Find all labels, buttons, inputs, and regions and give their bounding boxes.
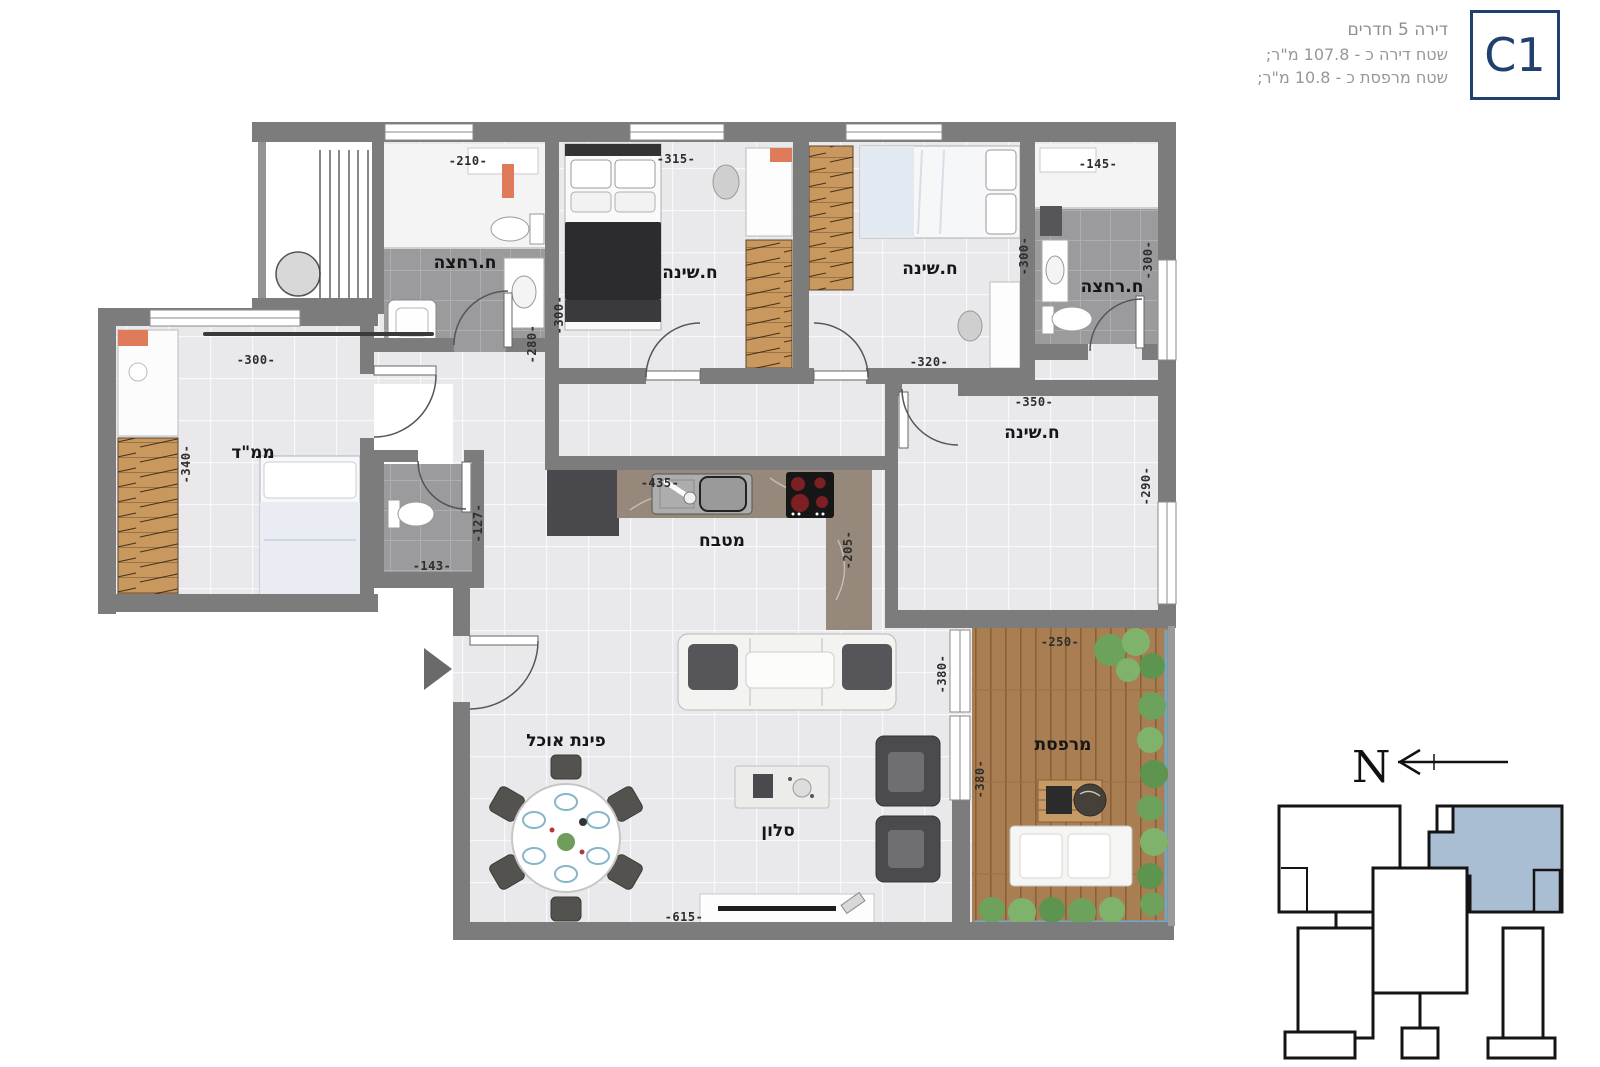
dim-bathroom2-width: -145- <box>1079 157 1118 171</box>
room-label-kitchen: מטבח <box>699 531 745 551</box>
coffee-table <box>735 766 829 808</box>
north-compass: N <box>1352 742 1508 793</box>
floorplan-page: דירה 5 חדרים שטח דירה כ - 107.8 מ"ר; שטח… <box>0 0 1600 1067</box>
floor-plan-svg: ח.רחצה ח.שינה ח.שינה ח.רחצה ממ"ד מטבח ח.… <box>0 0 1600 1067</box>
blanket <box>565 222 661 300</box>
centerpiece <box>557 833 575 851</box>
washing-machine <box>276 252 320 296</box>
wardrobe <box>746 240 792 370</box>
room-label-bathroom-1: ח.רחצה <box>434 253 497 273</box>
dim-bathroom1-depth: -280- <box>525 325 539 364</box>
dim-toilet-width: -143- <box>413 559 452 573</box>
dim-bedroom1-depth: -300- <box>552 296 566 335</box>
room-label-master-bedroom: ח.שינה <box>1004 423 1059 443</box>
dim-bedroom2-depth: -300- <box>1017 237 1031 276</box>
toilet-room-fixtures <box>388 500 434 528</box>
key-plan <box>1279 806 1562 1058</box>
tv <box>718 906 836 911</box>
chair <box>713 165 739 199</box>
shower-tray <box>388 300 436 344</box>
toilet <box>530 214 544 244</box>
dim-bedroom2-width: -320- <box>910 355 949 369</box>
dim-living-width: -615- <box>665 910 704 924</box>
dim-balcony-width: -250- <box>1041 635 1080 649</box>
room-label-balcony: מרפסת <box>1035 735 1092 755</box>
wardrobe <box>118 438 178 594</box>
stool <box>958 311 982 341</box>
tray <box>1046 786 1072 814</box>
room-label-bathroom-2: ח.רחצה <box>1081 277 1144 297</box>
room-label-bedroom-2: ח.שינה <box>902 259 957 279</box>
room-label-dining: פינת אוכל <box>526 731 606 751</box>
dim-balcony-door: -380- <box>935 655 949 694</box>
desk <box>990 282 1020 368</box>
room-label-living: סלון <box>761 821 795 841</box>
accent-cabinet <box>502 164 514 198</box>
dim-master-width: -350- <box>1015 395 1054 409</box>
dim-master-depth: -290- <box>1139 467 1153 506</box>
room-label-bedroom-1: ח.שינה <box>662 263 717 283</box>
room-label-mamad: ממ"ד <box>231 443 274 463</box>
dim-bathroom2-depth: -300- <box>1141 241 1155 280</box>
entry-arrow-icon <box>424 648 452 690</box>
north-arrow-icon <box>1398 750 1508 774</box>
dim-mamad-width: -300- <box>237 353 276 367</box>
dim-kitchen-width: -435- <box>641 476 680 490</box>
dim-bedroom1-width: -315- <box>657 152 696 166</box>
dim-mamad-depth: -340- <box>179 445 193 484</box>
side-table <box>1074 784 1106 816</box>
fridge-cabinet <box>547 470 619 536</box>
cooktop <box>786 472 834 518</box>
north-label: N <box>1352 742 1391 793</box>
cabinet <box>1040 206 1062 236</box>
dim-bathroom1-width: -210- <box>449 154 488 168</box>
dim-toilet-depth: -127- <box>471 504 485 543</box>
wardrobe <box>809 146 853 290</box>
dim-balcony-depth: -380- <box>973 760 987 799</box>
dim-kitchen-leg: -205- <box>841 531 855 570</box>
